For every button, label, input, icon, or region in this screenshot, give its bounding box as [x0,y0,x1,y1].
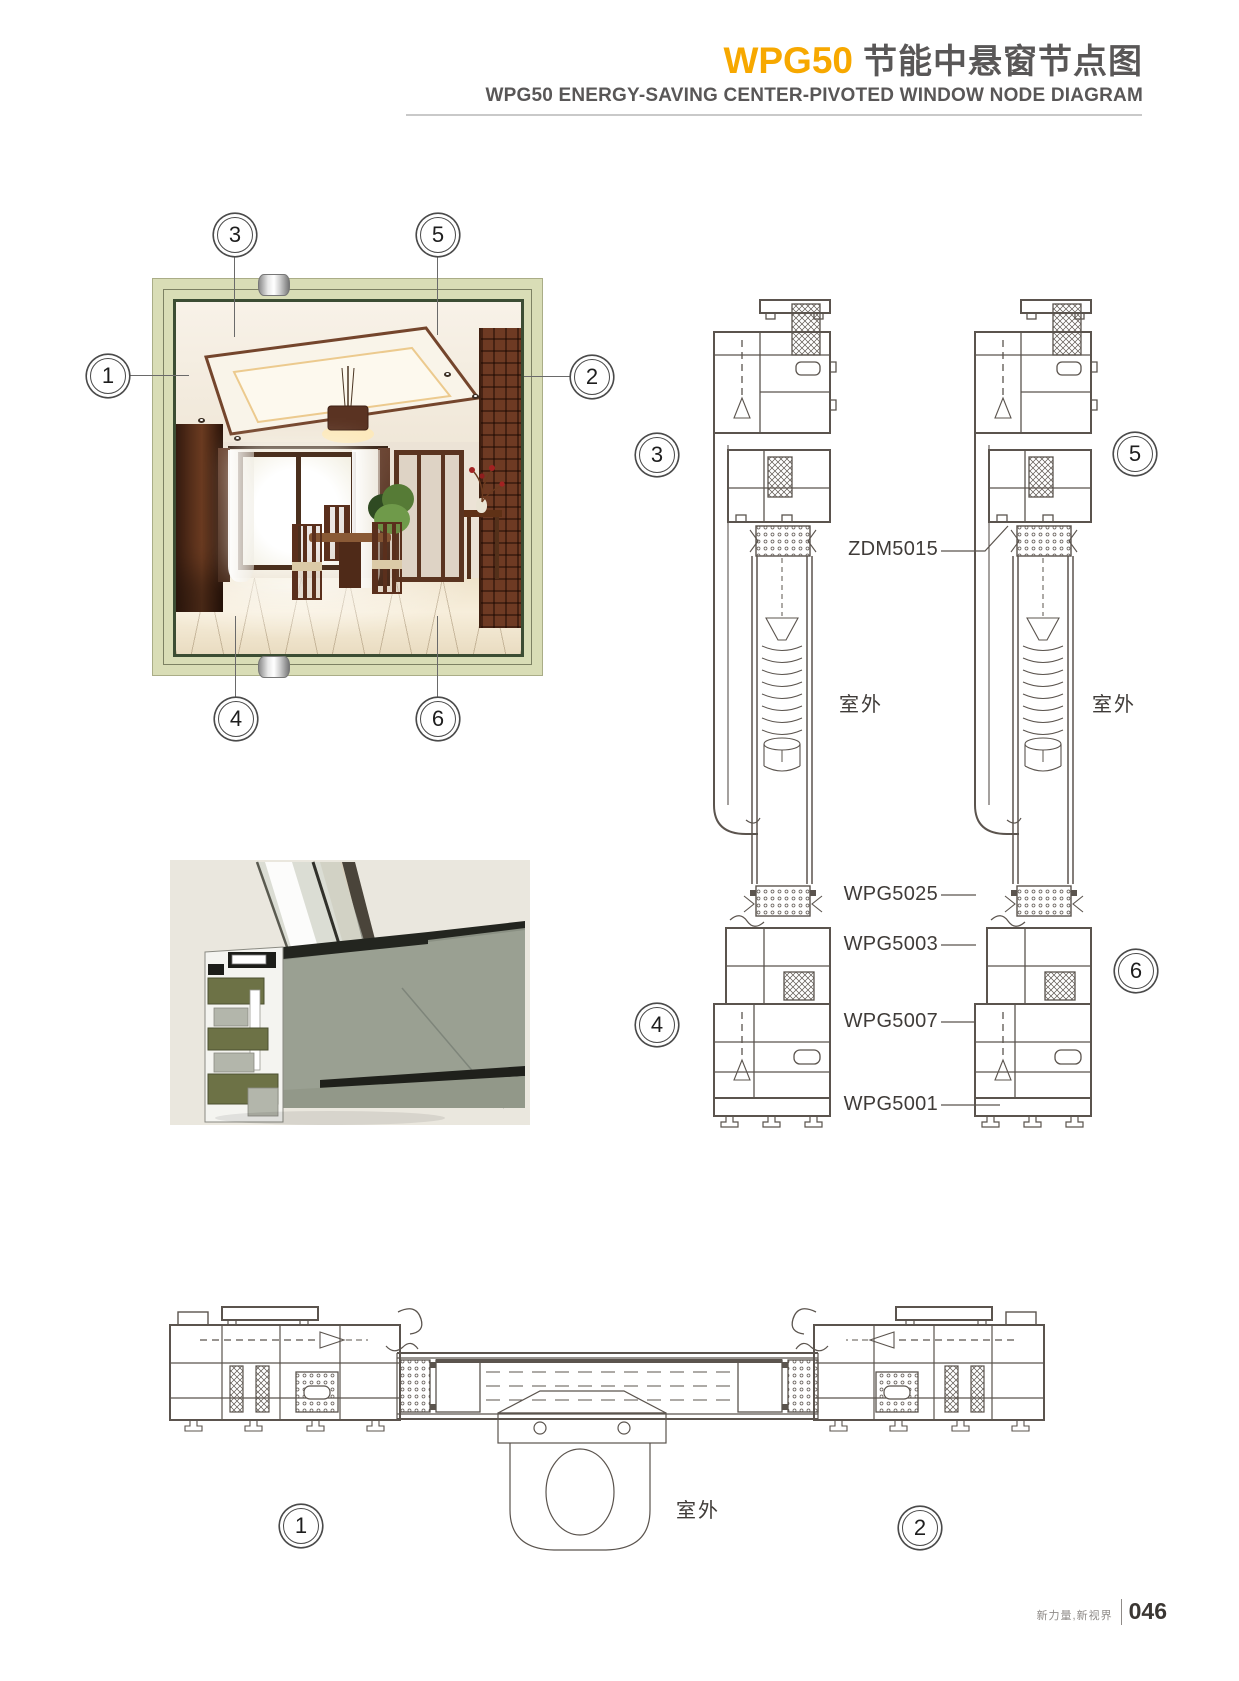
dining-chair [372,522,402,594]
leader-line [524,376,570,377]
interior-photo [173,299,524,657]
part-label-zdm5015: ZDM5015 [798,538,938,561]
leader-line [234,256,235,337]
pivot-mechanism [498,1391,666,1550]
outdoor-label: 室外 [1092,688,1136,717]
photo-callout-2: 2 [574,359,610,395]
ceiling-spotlight [234,436,241,441]
page-footer: 新力量,新视界 046 [1037,1598,1167,1625]
outdoor-label: 室外 [839,688,883,717]
diagram-callout-6: 6 [1118,953,1154,989]
leader-line [437,616,438,697]
leader-line [235,616,236,697]
curtain-rod [228,446,388,449]
window-frame-photo-panel [152,278,543,676]
photo-callout-5: 5 [420,217,456,253]
dining-table-base [339,542,361,588]
chair-cushion [292,562,322,571]
wood-cabinet [176,424,223,612]
diagram-callout-1: 1 [283,1508,319,1544]
photo-callout-4: 4 [218,701,254,737]
pivot-hinge-top [258,274,290,296]
catalog-page: { "header": { "brand": "WPG50", "title_z… [0,0,1239,1681]
footer-slogan: 新力量,新视界 [1037,1601,1113,1623]
profile-corner-render [170,860,530,1125]
vertical-section-drawing-right [975,300,1097,1127]
ceiling-spotlight [472,394,479,399]
photo-floor [176,578,521,654]
console-table [464,510,502,580]
sheer-curtain [228,450,254,582]
page-number: 046 [1129,1598,1167,1625]
part-label-wpg5025: WPG5025 [798,883,938,906]
chair-cushion [372,560,402,569]
photo-callout-3: 3 [217,217,253,253]
diagram-callout-2: 2 [902,1510,938,1546]
part-label-wpg5003: WPG5003 [798,933,938,956]
part-label-wpg5001: WPG5001 [798,1093,938,1116]
ceiling-spotlight [444,372,451,377]
diagram-callout-3: 3 [639,437,675,473]
photo-callout-6: 6 [420,701,456,737]
leader-line [437,256,438,335]
diagram-callout-5: 5 [1117,436,1153,472]
ceiling-tray-graphic [176,302,521,452]
node-section-drawings [0,0,1239,1681]
vertical-section-drawing-left [714,300,836,1127]
leader-line [129,375,189,376]
diagram-callout-4: 4 [639,1007,675,1043]
flower-branches [458,458,518,504]
footer-divider [1121,1599,1122,1625]
ceiling-spotlight [198,418,205,423]
pivot-hinge-bottom [258,656,290,678]
photo-callout-1: 1 [90,358,126,394]
part-label-wpg5007: WPG5007 [798,1010,938,1033]
outdoor-label: 室外 [676,1494,720,1523]
